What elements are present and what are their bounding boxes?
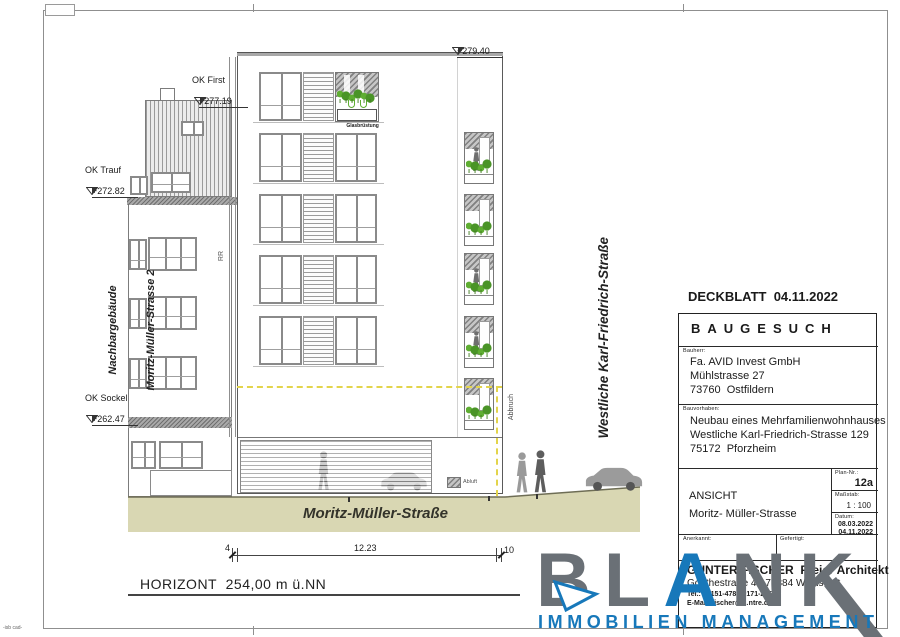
- greenery: [466, 159, 492, 173]
- sill-line: [253, 183, 384, 184]
- sill-line: [253, 305, 384, 306]
- deckblatt-title: DECKBLATT 04.11.2022: [688, 290, 838, 305]
- louver-panel: [303, 316, 334, 365]
- street-car: [583, 464, 645, 492]
- bauvorhaben-line1: Neubau eines Mehrfamilienwohnhauses: [690, 415, 886, 428]
- window: [259, 133, 302, 182]
- person-silhouette: [513, 452, 531, 496]
- demolition-line-v: [496, 386, 498, 496]
- view-label: ANSICHT: [689, 490, 737, 503]
- ok-first-label: OK First: [192, 75, 225, 85]
- dim-right: 10: [504, 545, 514, 555]
- bauherr-line1: Fa. AVID Invest GmbH: [690, 356, 800, 369]
- dim-middle: 12.23: [354, 543, 377, 553]
- glass-railing-box: Glasbrüstung: [337, 109, 377, 121]
- window: [335, 255, 377, 304]
- neighbor-label: Nachbargebäude Moritz-Müller-Strasse 2: [82, 245, 112, 415]
- neighbor-label-line2: Moritz-Müller-Strasse 2: [145, 245, 158, 415]
- greenery: [337, 89, 377, 103]
- window: [181, 121, 204, 136]
- level-marker-icon: [86, 187, 98, 195]
- window: [335, 133, 377, 182]
- greenery: [466, 405, 492, 419]
- sockel-band: [128, 417, 232, 428]
- eave-band: [127, 197, 238, 205]
- greenery: [466, 280, 492, 294]
- datum-1: 08.03.2022: [827, 521, 873, 529]
- bauherr-line2: Mühlstrasse 27: [690, 370, 765, 383]
- level-marker-icon: [194, 97, 206, 105]
- view-name: Moritz- Müller-Strasse: [689, 508, 797, 521]
- bauherr-label: Bauherr:: [683, 348, 706, 354]
- dim-ext-r1: [496, 548, 497, 562]
- dim-left: 4: [225, 543, 230, 553]
- louver-panel: [303, 255, 334, 304]
- massstab: 1 : 100: [829, 501, 871, 510]
- window: [259, 194, 302, 243]
- bauvorhaben-line2: Westliche Karl-Friedrich-Strasse 129: [690, 429, 869, 442]
- window: [151, 172, 191, 193]
- demolition-line-h: [237, 386, 502, 388]
- street-right-label: Westliche Karl-Friedrich-Straße: [596, 218, 612, 458]
- louver-panel: [303, 194, 334, 243]
- rr-label: RR: [218, 241, 226, 271]
- window: [259, 255, 302, 304]
- cad-note: -isb cad-: [3, 626, 22, 632]
- chimney: [160, 88, 175, 101]
- bauherr-line3: 73760 Ostfildern: [690, 384, 774, 397]
- balcony: [464, 253, 494, 305]
- logo-triangle-icon: [549, 578, 601, 614]
- fold-tick-top-1: [253, 4, 254, 12]
- datum-label: Datum:: [835, 514, 854, 520]
- car-silhouette: [583, 464, 645, 491]
- doc-type: BAUGESUCH: [691, 322, 838, 337]
- plan-nr: 12a: [829, 477, 873, 490]
- greenery: [466, 343, 492, 357]
- window: [259, 316, 302, 365]
- balcony: [464, 194, 494, 246]
- fold-tick-top-2: [683, 4, 684, 12]
- datum-2: 04.11.2022: [827, 529, 873, 537]
- window: [259, 72, 302, 121]
- vent-label: Abluft: [463, 479, 477, 485]
- horizon-label: HORIZONT 254,00 m ü.NN: [140, 576, 326, 592]
- level-marker-icon: [86, 415, 98, 423]
- neighbor-label-line1: Nachbargebäude: [107, 245, 120, 415]
- window: [335, 316, 377, 365]
- fold-mark: [45, 4, 75, 16]
- louver-panel: [303, 72, 334, 121]
- logo-subtitle: IMMOBILIEN MANAGEMENT: [538, 612, 879, 633]
- street-bottom-label: Moritz-Müller-Straße: [303, 505, 448, 522]
- bauvorhaben-label: Bauvorhaben:: [683, 406, 720, 412]
- sill-line: [253, 244, 384, 245]
- logo-letter-a: A: [663, 538, 731, 623]
- vent: [447, 477, 461, 488]
- frame-top: [43, 10, 887, 11]
- drawing-sheet: -isb cad- Glasbrüstung Abbruch Abluft: [0, 0, 900, 637]
- abbruch-label: Abbruch: [508, 382, 516, 432]
- window: [159, 441, 203, 469]
- slab-line: [238, 437, 502, 438]
- roof-terrace: Glasbrüstung: [335, 72, 379, 122]
- frame-left: [43, 10, 44, 629]
- dim-line: [232, 555, 501, 556]
- glass-railing-label: Glasbrüstung: [346, 123, 379, 129]
- bauvorhaben-line3: 75172 Pforzheim: [690, 443, 776, 456]
- window: [131, 441, 156, 469]
- frame-right: [887, 10, 888, 629]
- balcony: [464, 316, 494, 368]
- dim-ext-l2: [237, 548, 238, 562]
- level-marker-icon: [452, 47, 464, 55]
- person-silhouette: [531, 450, 550, 496]
- greenery: [466, 221, 492, 235]
- plan-label: Plan-Nr.:: [835, 470, 858, 476]
- fold-tick-bottom-1: [253, 626, 254, 635]
- window: [335, 194, 377, 243]
- ok-trauf-label: OK Trauf: [85, 165, 121, 175]
- recess-line: [457, 57, 458, 437]
- balcony: [464, 132, 494, 184]
- massstab-label: Maßstab:: [835, 492, 860, 498]
- louver-panel: [303, 133, 334, 182]
- sill-line: [253, 366, 384, 367]
- horizon-line: [128, 594, 520, 596]
